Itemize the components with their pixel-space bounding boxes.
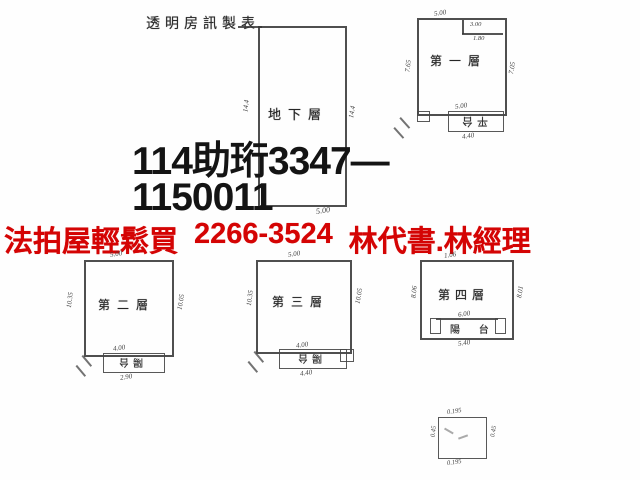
roof-dim-top: 0.195 [447, 407, 462, 416]
floor2-label: 第二層 [98, 296, 155, 313]
floor4-balcony-line [436, 318, 498, 320]
advert-phone: 2266-3524 [194, 218, 333, 260]
floor2-dim-left: 10.35 [65, 292, 75, 309]
floor4-dim-left: 8.06 [409, 285, 418, 298]
floor4-balcony-end-left [430, 318, 441, 334]
floor2-balcony-dim-top: 4.00 [113, 343, 126, 353]
floor1-notch-dim-a: 3.00 [470, 21, 481, 28]
floor1-platform-dim-top: 5.00 [455, 101, 468, 111]
floor4-balcony-dim-bottom: 5.40 [458, 338, 471, 348]
page-title: 透明房訊製表 [146, 13, 260, 33]
floor4-balcony-label: 陽 台 [450, 321, 497, 336]
basement-dim-right: 14.4 [347, 105, 357, 118]
advert-banner: 法拍屋輕鬆買 2266-3524 林代書.林經理 [4, 218, 638, 260]
roof-dim-right: 0.45 [489, 425, 498, 437]
floor1-squiggle [394, 127, 404, 138]
basement-label: 地下層 [268, 104, 328, 123]
floor3-squiggle [248, 361, 258, 373]
floor1-platform-dim-bottom: 4.40 [462, 131, 475, 141]
roof-dim-left: 0.45 [430, 425, 438, 437]
scanned-foreclosure-flyer: 透明房訊製表 地下層 14.4 14.4 5.00 5.00 3.00 1.80… [0, 0, 640, 480]
floor3-balcony-dim-bottom: 4.40 [300, 368, 313, 378]
basement-dim-left: 14.4 [241, 99, 250, 112]
floor1-dim-left: 7.65 [403, 59, 412, 72]
advert-contact: 林代書.林經理 [349, 218, 531, 260]
floor1-label: 第一層 [430, 52, 487, 69]
floor3-label: 第三層 [272, 293, 329, 310]
floor3-dim-left: 10.35 [245, 290, 255, 307]
case-number-line2: 1150011 [132, 180, 273, 216]
floor2-squiggle [76, 365, 86, 377]
floor3-balcony-step [340, 349, 354, 362]
floor1-dim-right: 7.05 [507, 61, 517, 74]
floor4-dim-top: 1.06 [444, 250, 457, 260]
floor2-balcony-dim-bottom: 2.90 [120, 372, 133, 382]
floor2-dim-right: 10.05 [176, 294, 187, 311]
floor3-balcony-dim-top: 4.00 [296, 340, 309, 350]
floor2-dim-top: 5.00 [110, 249, 123, 259]
advert-slogan: 法拍屋輕鬆買 [4, 218, 178, 260]
basement-dim-bottom: 5.00 [315, 205, 330, 216]
floor3-balcony-label: 陽台 [294, 352, 322, 367]
floor4-balcony-dim-top: 6.00 [458, 309, 471, 319]
floor1-corner-stub [417, 111, 430, 122]
case-number-line1: 114助珩3347— [132, 144, 389, 180]
roof-structure-outline [438, 417, 487, 459]
floor1-notch-dim-b: 1.80 [473, 35, 484, 42]
floor2-balcony-label: 陽台 [115, 356, 143, 371]
floor3-dim-right: 10.05 [354, 288, 365, 305]
floor1-dim-top: 5.00 [434, 8, 447, 18]
floor4-label: 第四層 [438, 286, 489, 303]
roof-dim-bottom: 0.195 [447, 458, 462, 467]
floor1-platform-label: 平台 [458, 114, 488, 130]
floor1-squiggle [400, 117, 410, 128]
floor4-dim-right: 8.01 [515, 285, 525, 298]
floor1-notch-line-v [462, 20, 464, 34]
floor3-dim-top: 5.00 [288, 249, 301, 259]
